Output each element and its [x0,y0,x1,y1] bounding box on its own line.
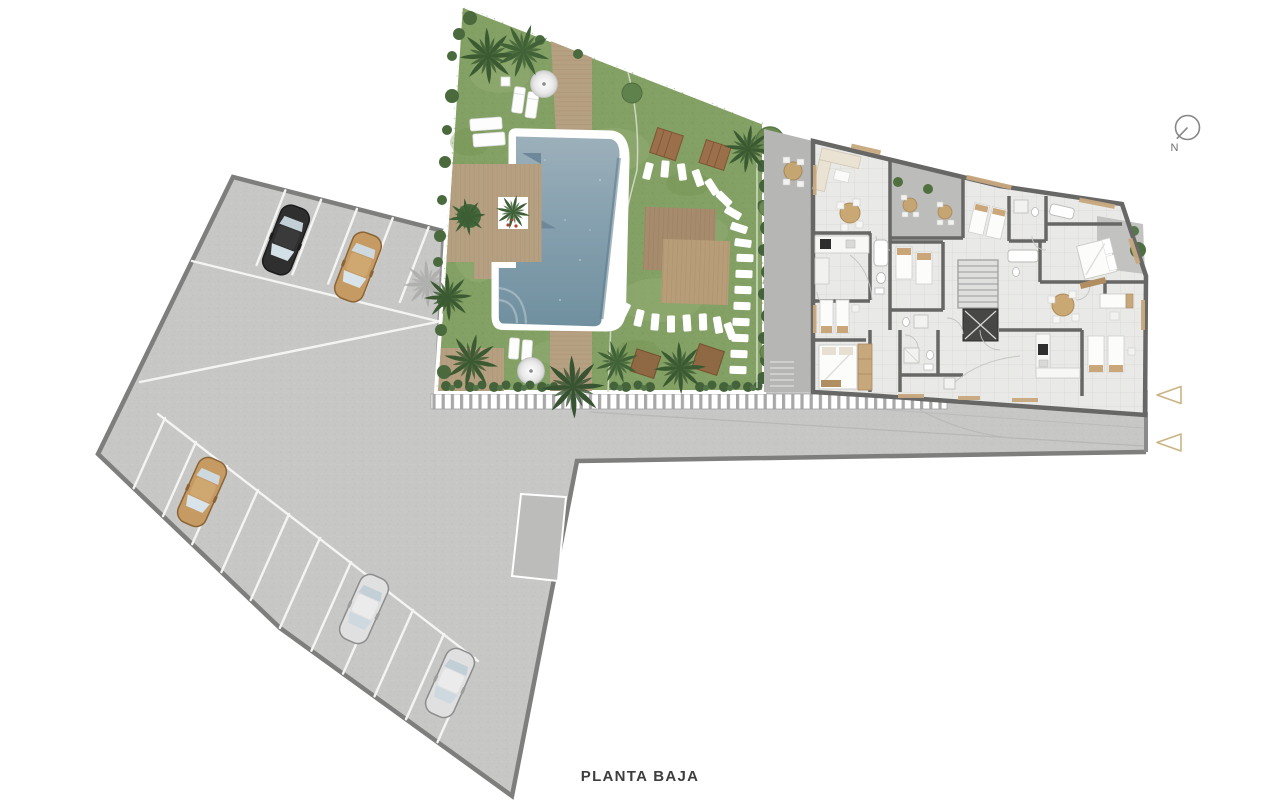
svg-text:N: N [1171,142,1179,154]
svg-text:PLANTA BAJA: PLANTA BAJA [581,768,699,785]
